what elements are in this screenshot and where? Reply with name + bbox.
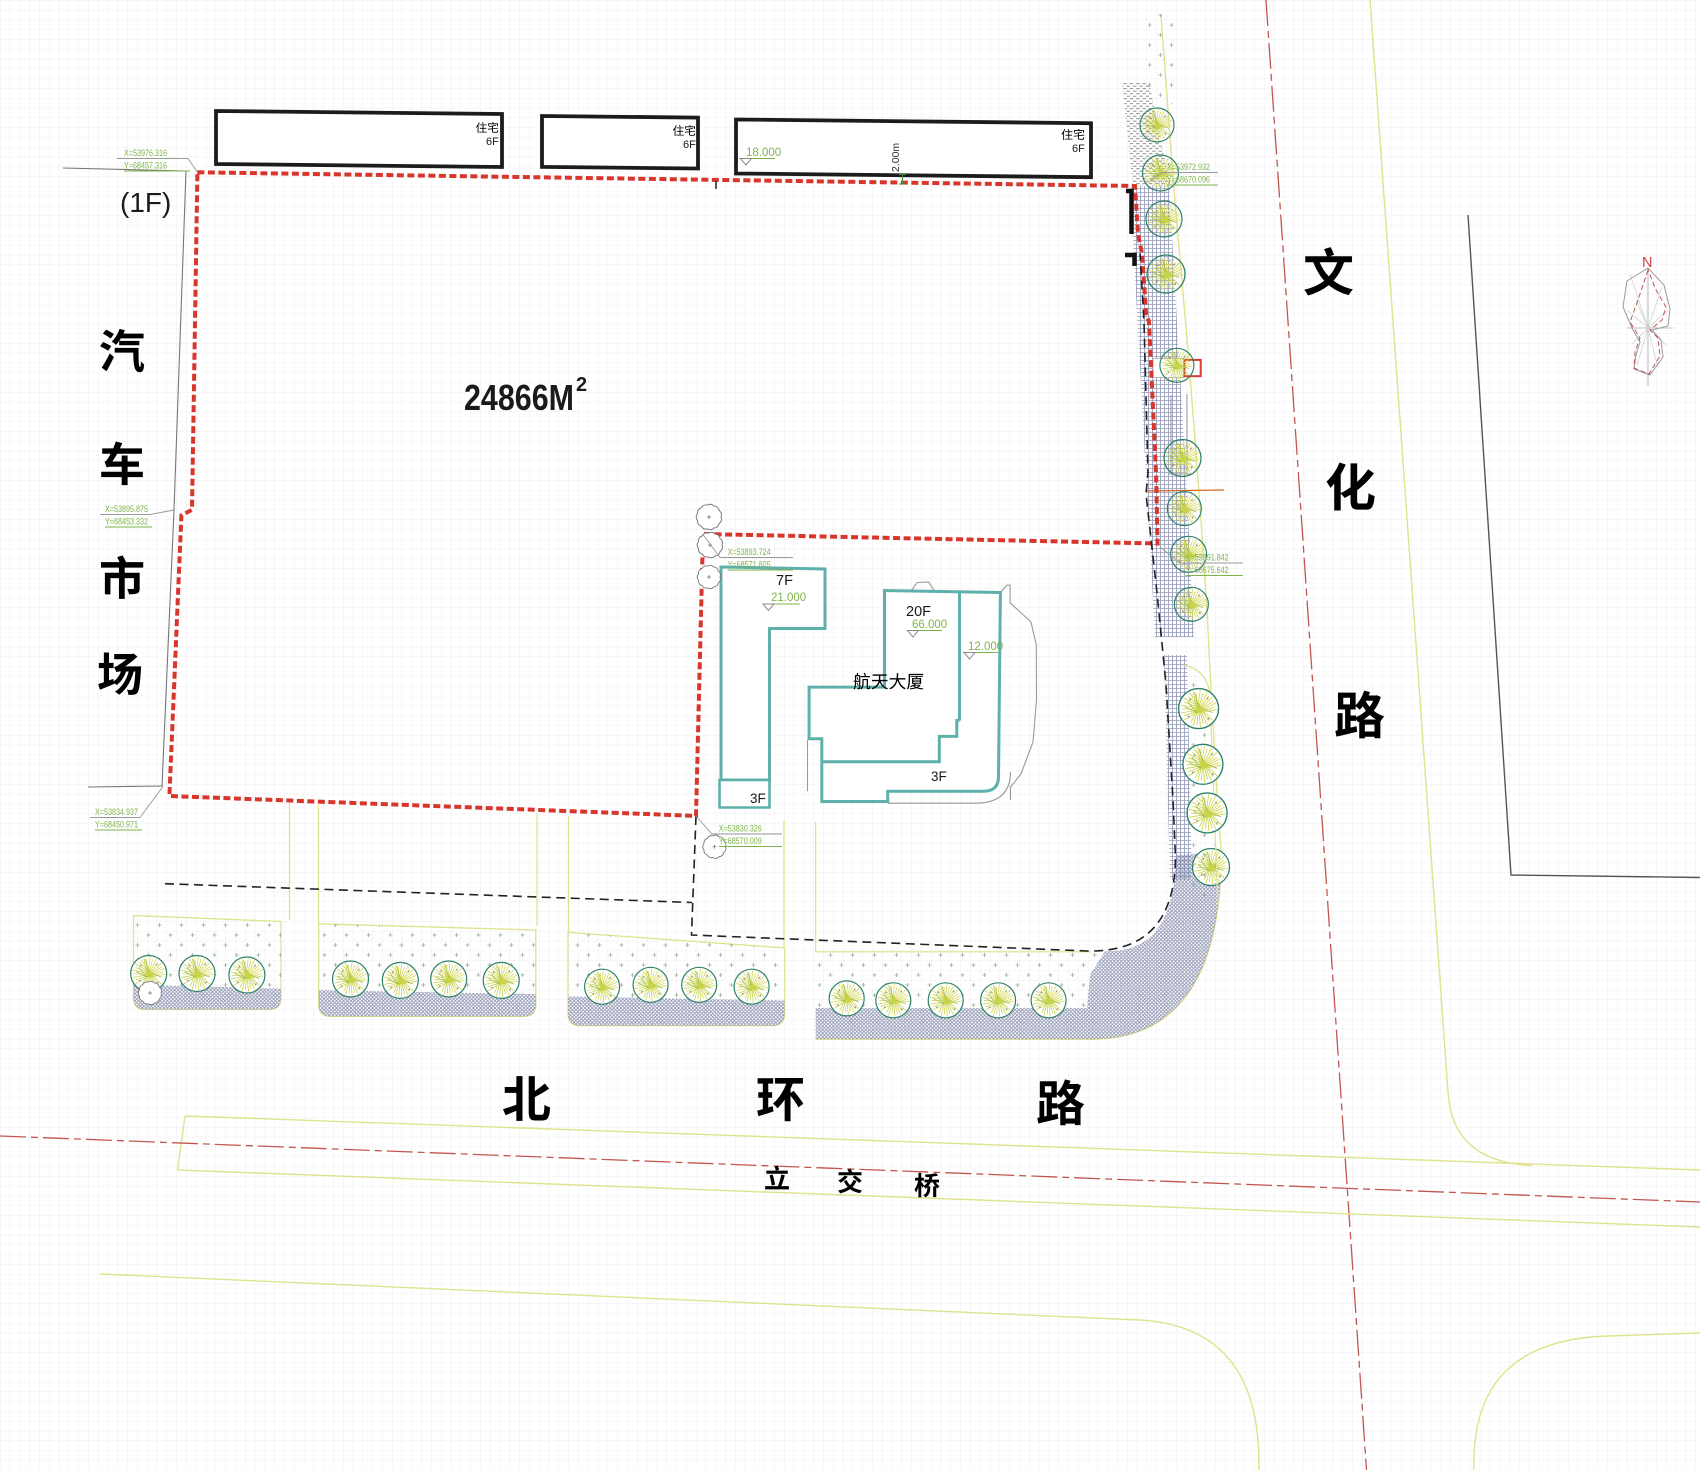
svg-text:X=53834.937: X=53834.937 xyxy=(95,807,138,818)
svg-text:6F: 6F xyxy=(1072,143,1085,155)
svg-text:7F: 7F xyxy=(776,573,793,589)
svg-text:X=53891.842: X=53891.842 xyxy=(1186,553,1229,564)
svg-text:X=53972.932: X=53972.932 xyxy=(1167,162,1210,173)
svg-text:2.00m: 2.00m xyxy=(890,143,902,172)
svg-text:X=53893.724: X=53893.724 xyxy=(728,547,771,558)
svg-text:(1F): (1F) xyxy=(120,187,171,218)
svg-text:X=53895.875: X=53895.875 xyxy=(105,504,148,515)
svg-text:12.000: 12.000 xyxy=(968,641,1003,653)
svg-text:3F: 3F xyxy=(931,769,947,784)
svg-text:24866M: 24866M xyxy=(464,377,574,418)
svg-text:Y=68450.971: Y=68450.971 xyxy=(95,820,138,831)
svg-text:3F: 3F xyxy=(750,791,766,806)
svg-text:21.000: 21.000 xyxy=(771,592,806,604)
svg-text:2: 2 xyxy=(576,374,587,396)
svg-text:Y=68571.805: Y=68571.805 xyxy=(728,560,771,571)
svg-text:Y=68453.332: Y=68453.332 xyxy=(105,517,148,528)
svg-text:Y=68457.316: Y=68457.316 xyxy=(124,161,167,172)
svg-text:66.000: 66.000 xyxy=(912,619,947,631)
svg-text:6F: 6F xyxy=(486,136,499,148)
svg-text:Y=68570.009: Y=68570.009 xyxy=(719,836,762,847)
svg-text:18.000: 18.000 xyxy=(746,147,781,159)
svg-text:20F: 20F xyxy=(906,604,931,620)
svg-text:6F: 6F xyxy=(683,139,696,151)
svg-text:Y=68670.096: Y=68670.096 xyxy=(1167,175,1210,186)
svg-text:X=53830.326: X=53830.326 xyxy=(719,824,762,835)
svg-text:Y=68675.642: Y=68675.642 xyxy=(1186,565,1229,576)
svg-text:X=53976.316: X=53976.316 xyxy=(124,148,167,159)
